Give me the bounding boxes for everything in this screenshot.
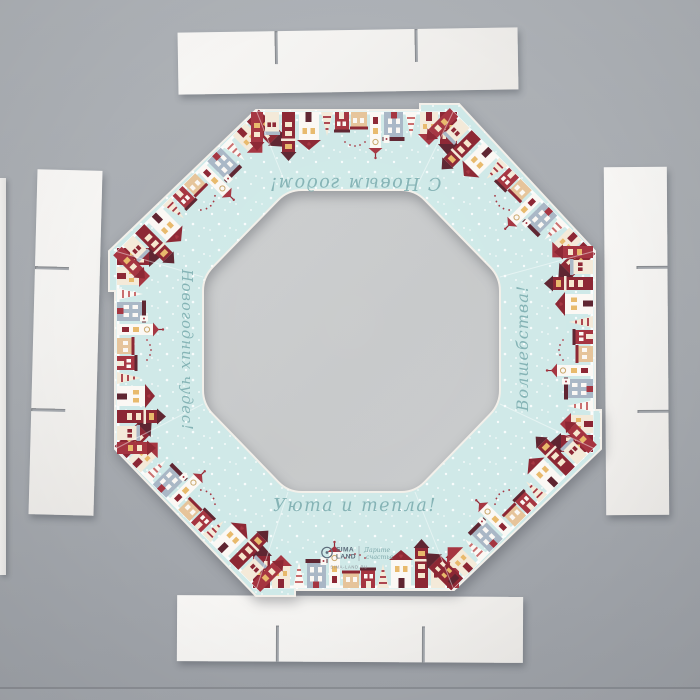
greeting-text-left: Новогодних чудес! xyxy=(178,268,194,431)
window-film xyxy=(203,190,500,492)
brand-name-line2: LAND xyxy=(336,554,356,561)
brand-slogan-line2: счастье xyxy=(366,554,394,561)
flat-lay-scene: С Новым годом! Новогодних чудес! Волшебс… xyxy=(0,0,700,700)
greeting-text-right: Волшебства! xyxy=(513,285,532,412)
brand-slogan-line1: Дарите xyxy=(363,547,391,554)
greeting-text-top: С Новым годом! xyxy=(269,173,442,193)
brand-website: SIMA-LAND.RU xyxy=(330,565,367,570)
brand-name-line1: SIMA xyxy=(336,547,354,554)
brand-logo-dot xyxy=(326,551,329,554)
greeting-text-bottom: Уюта и тепла! xyxy=(273,496,437,516)
box-frame-blank: С Новым годом! Новогодних чудес! Волшебс… xyxy=(0,0,700,700)
